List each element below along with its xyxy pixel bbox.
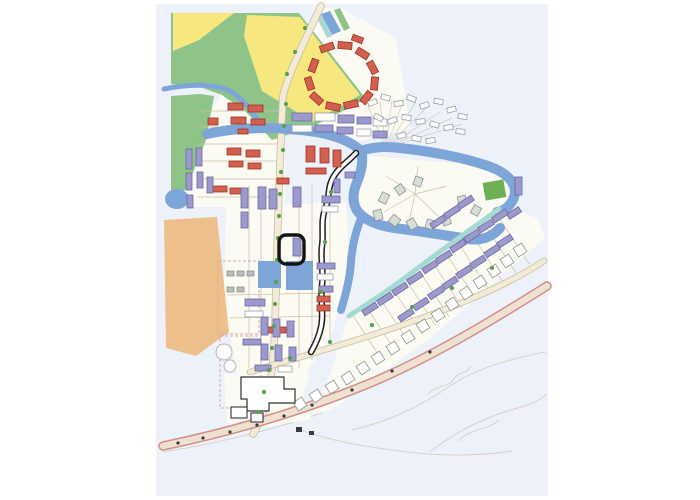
- building-red: [238, 129, 248, 134]
- facility-annex: [231, 407, 247, 418]
- building-purple: [345, 172, 355, 178]
- building-white: [245, 311, 263, 317]
- site-plan-map: [0, 0, 700, 500]
- building-purple: [293, 187, 301, 207]
- building-red: [246, 150, 260, 157]
- building-red: [248, 163, 261, 169]
- utility-square: [227, 287, 234, 292]
- tree-dot: [370, 323, 374, 327]
- ornamental-pond: [216, 344, 232, 360]
- tree-dot: [277, 214, 281, 218]
- building-purple: [275, 345, 282, 361]
- building-purple: [338, 115, 354, 123]
- building-red: [208, 118, 218, 125]
- roadside-marker-dot: [350, 388, 353, 391]
- roadside-marker-dot: [310, 403, 313, 406]
- building-red: [228, 103, 243, 110]
- building-white: [416, 119, 425, 125]
- tree-dot: [323, 240, 327, 244]
- tree-dot: [274, 280, 278, 284]
- building-purple: [287, 321, 294, 337]
- building-purple: [258, 187, 266, 209]
- roadside-marker-dot: [255, 423, 258, 426]
- building-red: [248, 105, 263, 112]
- building-purple: [293, 238, 301, 256]
- tree-dot: [329, 190, 333, 194]
- building-purple: [207, 177, 213, 193]
- building-white: [317, 274, 333, 280]
- building-red: [317, 296, 330, 302]
- building-purple: [187, 195, 193, 208]
- park-green-square: [483, 179, 507, 200]
- tree-dot: [328, 340, 332, 344]
- building-purple: [261, 344, 268, 360]
- tree-dot: [267, 368, 271, 372]
- tree-dot: [293, 50, 297, 54]
- tree-dot: [281, 148, 285, 152]
- tree-dot: [279, 170, 283, 174]
- building-purple: [196, 148, 202, 166]
- roadside-marker-dot: [282, 414, 285, 417]
- building-purple: [334, 179, 340, 193]
- tree-dot: [282, 124, 286, 128]
- scanned-site-plan-page: [0, 0, 700, 500]
- tree-dot: [303, 26, 307, 30]
- roadside-marker-dot: [228, 430, 231, 433]
- building-purple: [315, 125, 333, 132]
- building-red: [306, 146, 315, 162]
- tree-dot: [270, 346, 274, 350]
- tree-dot: [285, 72, 289, 76]
- tree-dot: [450, 286, 454, 290]
- ornamental-pond: [224, 360, 236, 372]
- building-red: [213, 186, 227, 192]
- tree-dot: [410, 305, 414, 309]
- building-purple: [373, 131, 387, 138]
- tree-dot: [256, 410, 260, 414]
- utility-square: [237, 287, 244, 292]
- utility-square: [227, 271, 234, 276]
- roadside-marker-dot: [428, 350, 431, 353]
- building-purple: [241, 212, 248, 228]
- building-white: [456, 129, 465, 135]
- utility-square: [247, 271, 254, 276]
- building-red: [227, 148, 241, 155]
- building-purple: [317, 263, 335, 269]
- building-red: [251, 119, 265, 125]
- building-white: [426, 137, 436, 143]
- building-red: [370, 77, 378, 91]
- roadside-marker-dot: [176, 441, 179, 444]
- utility-square: [237, 271, 244, 276]
- building-purple: [243, 339, 261, 345]
- building-white: [357, 129, 371, 136]
- roadside-marker-dot: [390, 369, 393, 372]
- building-purple: [245, 299, 265, 306]
- building-red: [338, 41, 353, 49]
- tree-dot: [272, 324, 276, 328]
- building-red: [333, 150, 341, 167]
- roadside-marker-dot: [201, 436, 204, 439]
- building-red: [229, 161, 243, 167]
- tree-dot: [490, 266, 494, 270]
- building-white: [322, 206, 338, 212]
- building-purple: [269, 189, 277, 209]
- building-red: [277, 178, 289, 184]
- facility-annex: [251, 413, 263, 422]
- building-purple: [357, 117, 371, 124]
- building-red: [320, 148, 329, 163]
- building-purple: [322, 196, 340, 203]
- central-lake-west: [258, 261, 281, 288]
- building-purple: [197, 172, 203, 188]
- building-purple: [261, 317, 268, 335]
- tree-dot: [273, 302, 277, 306]
- building-red: [317, 305, 330, 311]
- tree-dot: [278, 192, 282, 196]
- building-white: [315, 113, 335, 121]
- road-junction-structure: [296, 427, 302, 432]
- building-purple: [186, 173, 192, 190]
- building-purple: [186, 149, 192, 169]
- tree-dot: [262, 390, 266, 394]
- building-purple: [337, 127, 353, 134]
- building-purple: [241, 188, 248, 208]
- building-white: [402, 114, 412, 120]
- building-red: [306, 168, 326, 174]
- west-pond: [165, 189, 189, 209]
- building-white: [458, 113, 468, 119]
- building-red: [231, 117, 246, 124]
- road-junction-structure: [309, 431, 314, 435]
- building-purple: [515, 177, 522, 195]
- building-white: [292, 125, 312, 132]
- tree-dot: [319, 290, 323, 294]
- building-white: [278, 366, 292, 372]
- tree-dot: [284, 102, 288, 106]
- tree-dot: [288, 356, 292, 360]
- building-white: [394, 100, 404, 106]
- building-purple: [292, 113, 312, 121]
